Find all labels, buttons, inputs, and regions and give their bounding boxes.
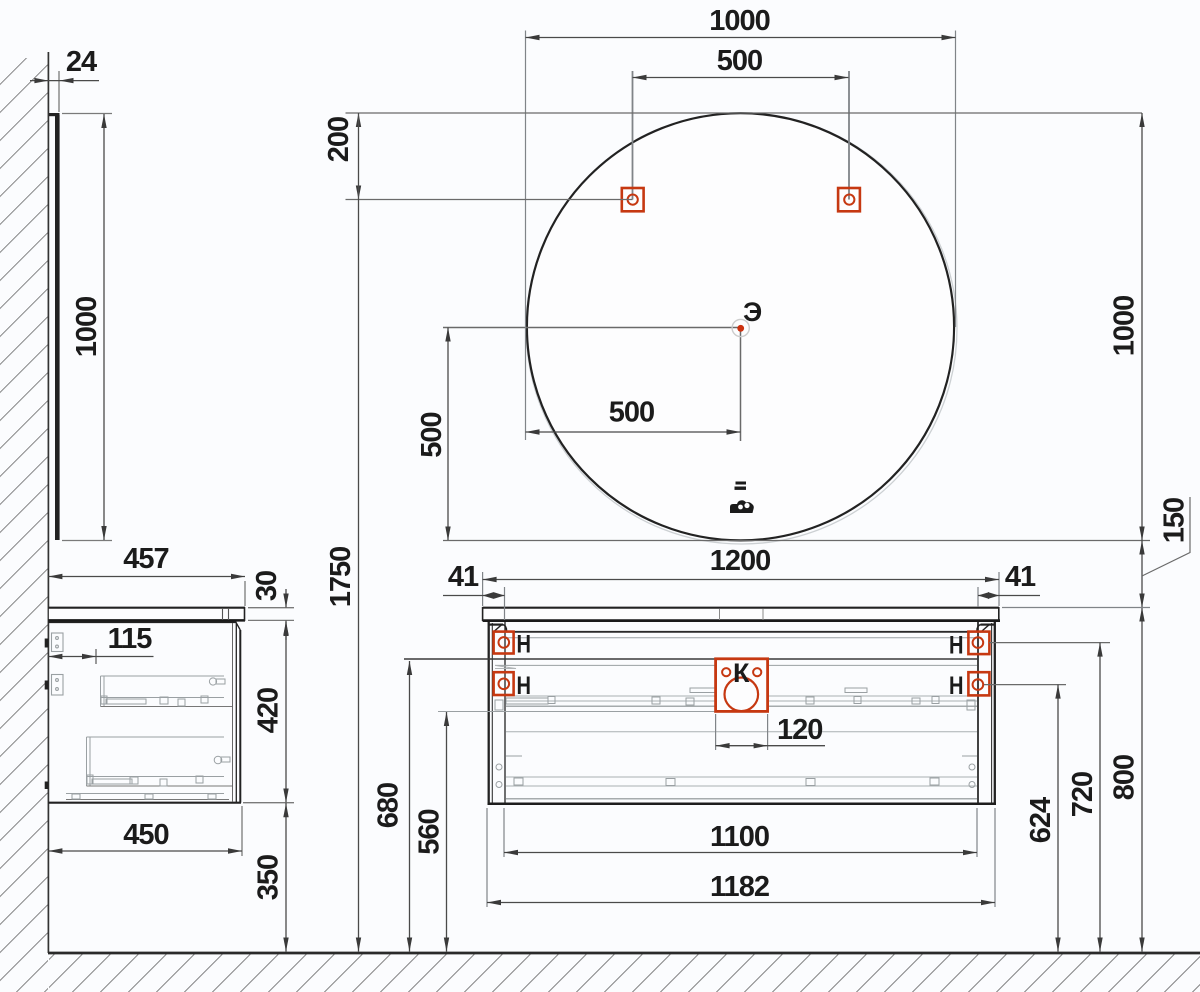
svg-text:350: 350 <box>253 855 285 900</box>
svg-text:Н: Н <box>949 672 964 700</box>
svg-text:560: 560 <box>414 809 446 854</box>
svg-text:800: 800 <box>1109 755 1141 800</box>
svg-text:1182: 1182 <box>710 871 769 903</box>
svg-text:1000: 1000 <box>71 297 103 358</box>
svg-text:1100: 1100 <box>710 821 769 853</box>
svg-text:1200: 1200 <box>710 545 771 577</box>
svg-text:624: 624 <box>1025 797 1057 843</box>
svg-text:150: 150 <box>1159 498 1191 543</box>
svg-text:Н: Н <box>949 632 964 660</box>
svg-text:41: 41 <box>1005 561 1036 593</box>
svg-text:1750: 1750 <box>325 547 357 608</box>
svg-text:Э: Э <box>743 297 762 327</box>
svg-text:Н: Н <box>517 631 532 659</box>
svg-text:457: 457 <box>123 543 168 575</box>
svg-text:680: 680 <box>373 783 405 828</box>
svg-text:1000: 1000 <box>709 5 770 37</box>
svg-text:720: 720 <box>1067 772 1099 817</box>
svg-text:500: 500 <box>609 397 654 429</box>
svg-text:115: 115 <box>108 623 153 655</box>
svg-text:420: 420 <box>253 688 285 733</box>
svg-text:1000: 1000 <box>1109 296 1141 357</box>
svg-text:Н: Н <box>517 672 532 700</box>
svg-text:450: 450 <box>123 819 168 851</box>
svg-text:120: 120 <box>777 714 822 746</box>
svg-text:500: 500 <box>416 412 448 457</box>
svg-text:30: 30 <box>251 571 283 601</box>
svg-text:24: 24 <box>66 46 97 78</box>
svg-text:41: 41 <box>448 561 479 593</box>
svg-text:500: 500 <box>717 45 762 77</box>
svg-text:200: 200 <box>323 117 355 162</box>
svg-text:К: К <box>733 658 750 688</box>
